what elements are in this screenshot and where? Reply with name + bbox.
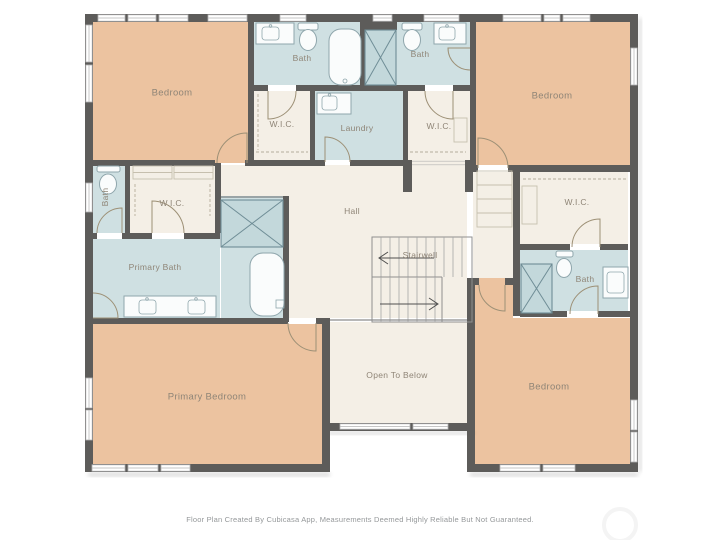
window xyxy=(161,465,190,471)
window xyxy=(128,465,158,471)
circular-logo-watermark-icon xyxy=(602,507,638,540)
window xyxy=(424,15,459,21)
toilet xyxy=(298,23,318,51)
room-label-wic-top-left: W.I.C. xyxy=(270,119,295,129)
window xyxy=(500,465,540,471)
room-label-wic-mid-left: W.I.C. xyxy=(160,198,185,208)
room-label-bath-right: Bath xyxy=(576,274,595,284)
room-wic-right xyxy=(520,172,628,244)
room-label-primary-bath: Primary Bath xyxy=(129,262,182,272)
window xyxy=(92,465,125,471)
room-label-open-to-below: Open To Below xyxy=(366,370,427,380)
window xyxy=(86,183,92,212)
window xyxy=(631,400,637,430)
room-label-wic-top-right: W.I.C. xyxy=(427,121,452,131)
shower xyxy=(221,200,283,247)
room-hall-main xyxy=(289,165,467,318)
room-label-bath-top-right: Bath xyxy=(411,49,430,59)
room-label-laundry: Laundry xyxy=(341,123,374,133)
window xyxy=(86,410,92,440)
toilet xyxy=(556,251,573,278)
room-label-bedroom-top-right: Bedroom xyxy=(532,91,573,102)
toilet xyxy=(402,23,422,51)
room-label-wic-right: W.I.C. xyxy=(565,197,590,207)
window xyxy=(503,15,541,21)
double-vanity xyxy=(124,296,216,317)
window xyxy=(563,15,590,21)
wall-opening xyxy=(412,160,465,166)
window xyxy=(631,432,637,462)
window xyxy=(340,424,410,429)
room-label-hall: Hall xyxy=(344,206,360,216)
window xyxy=(128,15,156,21)
window xyxy=(208,15,247,21)
sink-vanity xyxy=(434,23,466,44)
room-label-bath-top-left: Bath xyxy=(293,53,312,63)
floor-plan: Bedroom Bath Bath Bedroom W.I.C. Laundry… xyxy=(0,0,720,540)
window xyxy=(373,15,392,21)
bathtub xyxy=(250,253,284,316)
window xyxy=(98,15,125,21)
room-label-primary-bedroom: Primary Bedroom xyxy=(168,392,246,403)
sink-vanity xyxy=(603,267,628,298)
window xyxy=(86,65,92,102)
room-label-stairwell: Stairwell xyxy=(403,250,438,260)
window xyxy=(159,15,188,21)
window xyxy=(413,424,448,429)
sink-vanity xyxy=(256,23,294,44)
room-label-bedroom-top-left: Bedroom xyxy=(152,88,193,99)
laundry-sink xyxy=(317,93,351,114)
room-label-bedroom-bottom-right: Bedroom xyxy=(529,382,570,393)
bathtub xyxy=(329,29,361,85)
window xyxy=(280,15,306,21)
room-corridor xyxy=(473,172,513,278)
room-label-bath-left: Bath xyxy=(100,188,110,207)
floor-plan-drawing xyxy=(0,0,720,540)
shower xyxy=(365,30,396,85)
window xyxy=(544,15,560,21)
window xyxy=(86,378,92,408)
room-hall-lobe xyxy=(221,165,289,196)
window xyxy=(543,465,575,471)
window xyxy=(86,25,92,62)
shower xyxy=(521,264,552,313)
window xyxy=(631,48,637,85)
